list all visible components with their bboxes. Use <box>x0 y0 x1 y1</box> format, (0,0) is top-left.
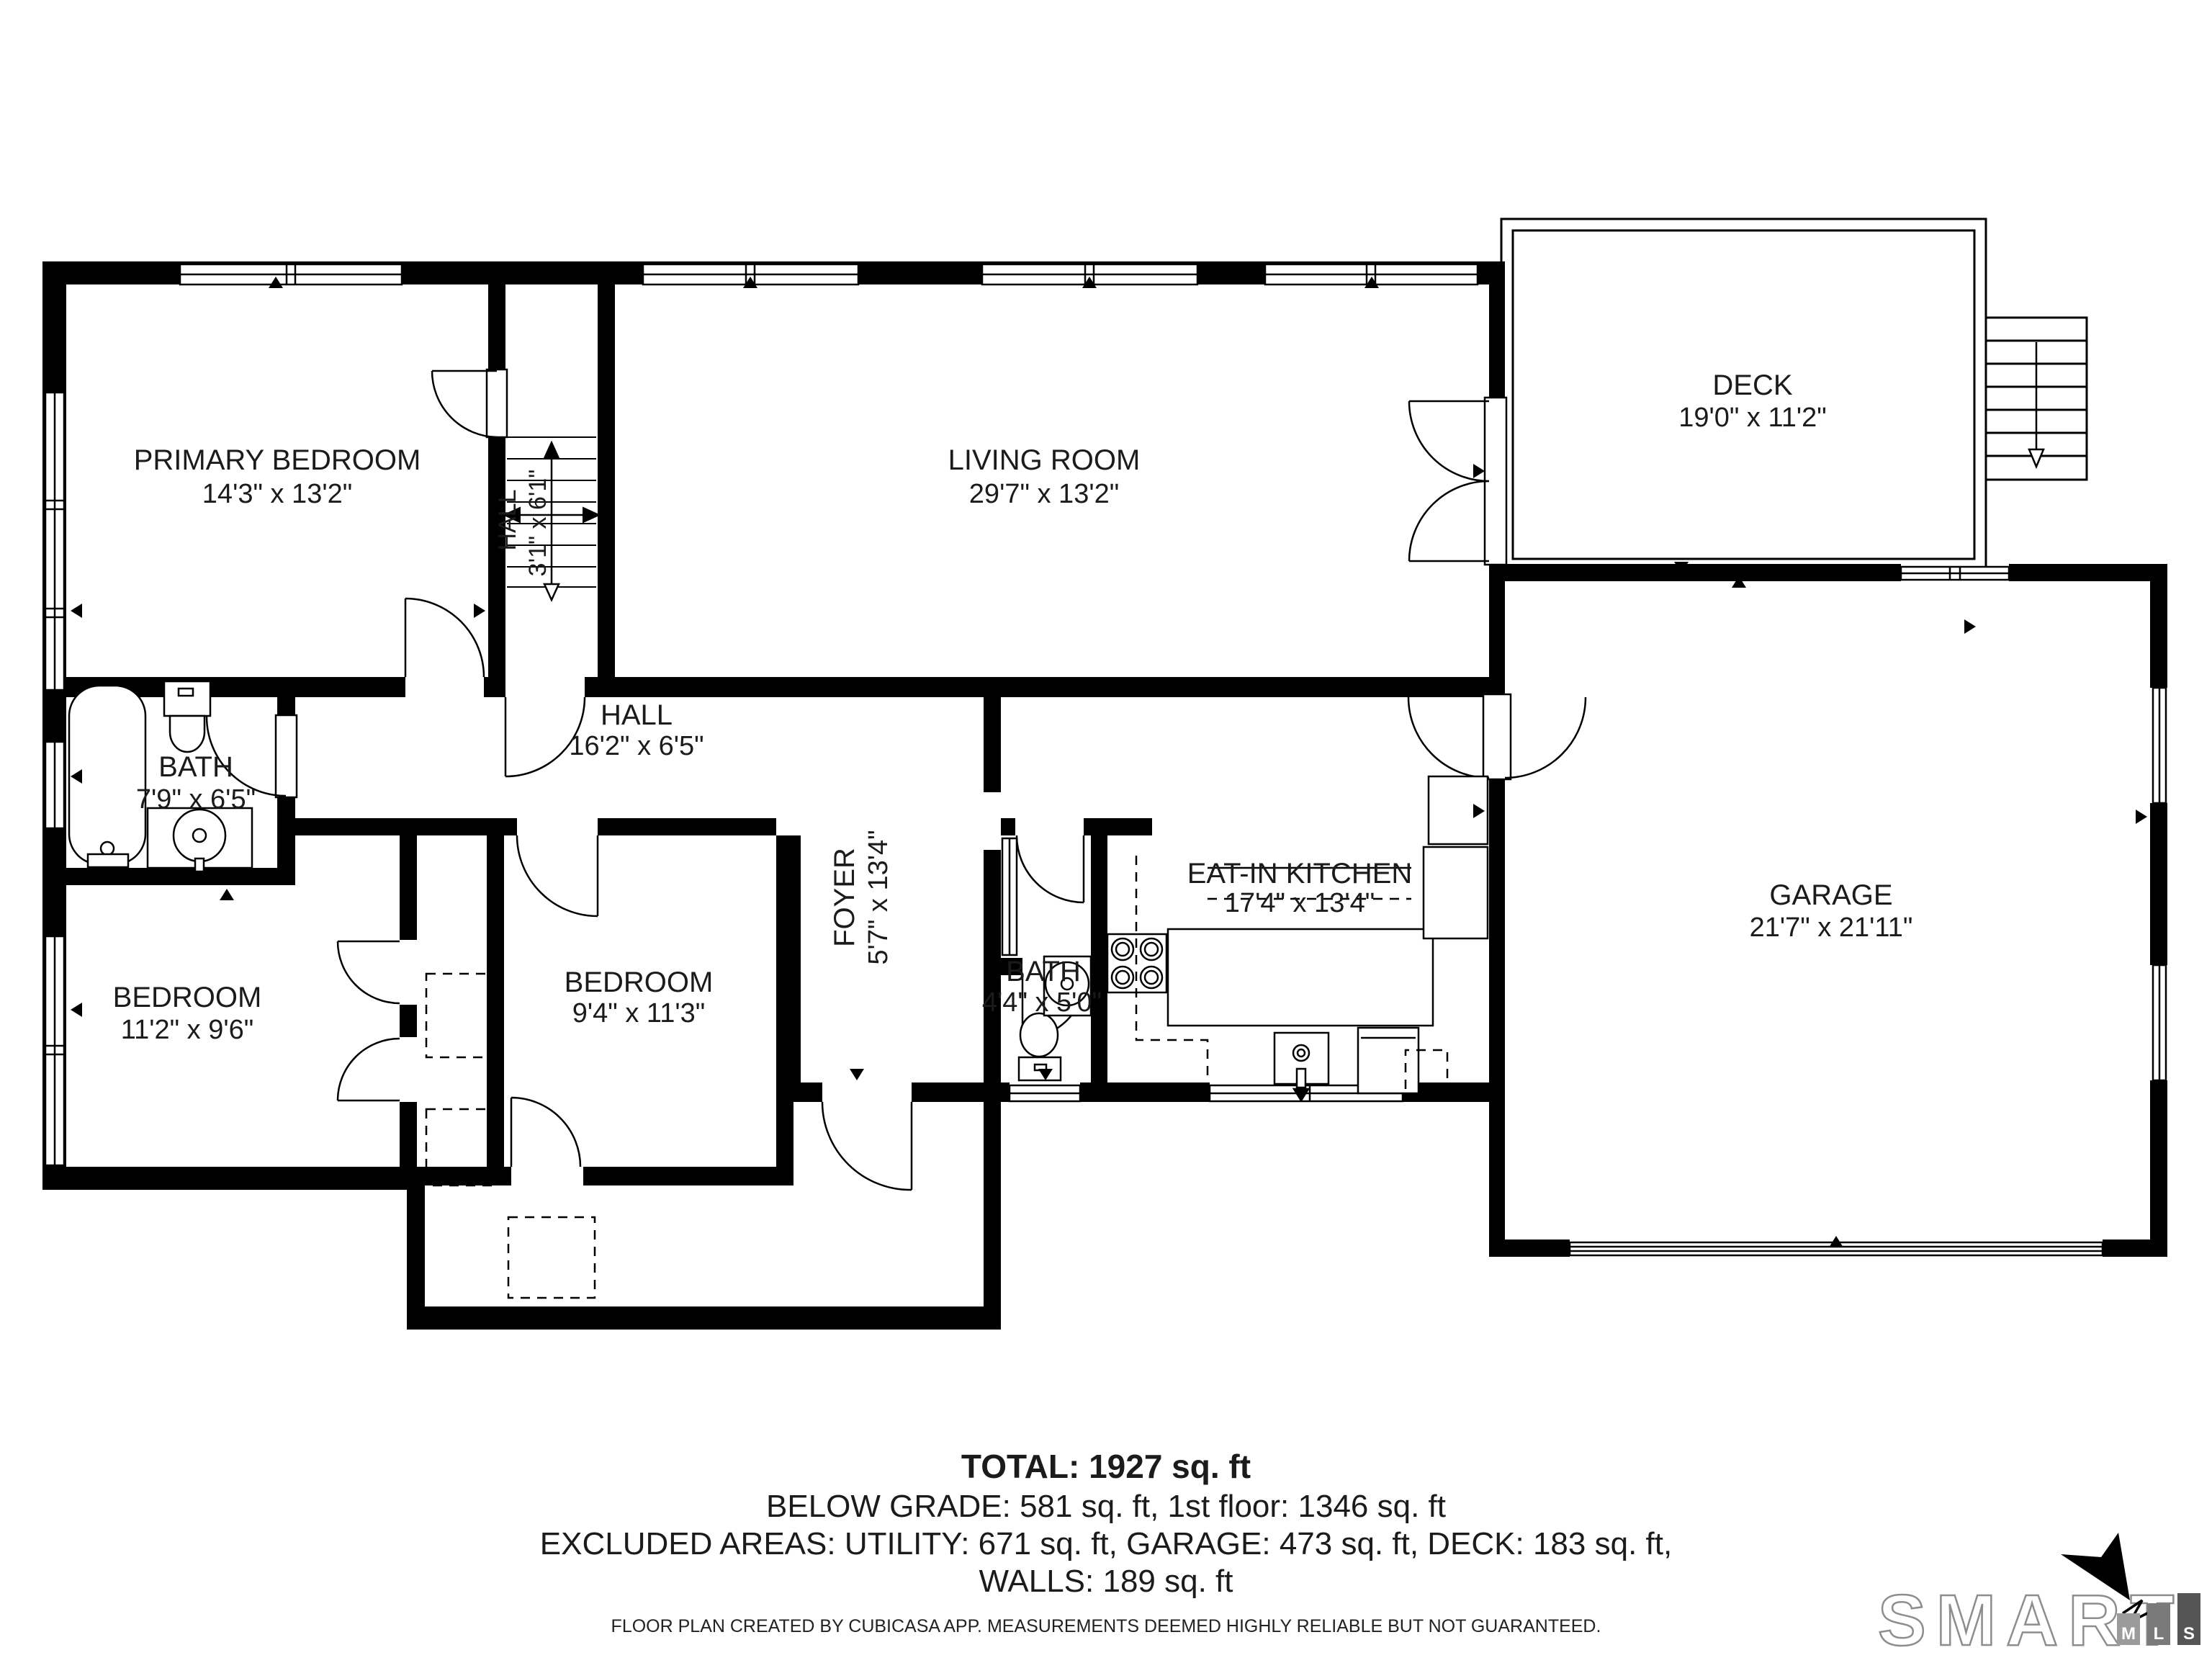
summary-excluded: EXCLUDED AREAS: UTILITY: 671 sq. ft, GAR… <box>540 1526 1672 1561</box>
room-label-stair-hall: HALL <box>494 489 521 550</box>
room-dims-garage: 21'7" x 21'11" <box>1750 913 1913 943</box>
kitchen-garage-door-slab <box>1483 694 1511 779</box>
closet-shelf-1 <box>426 974 495 1057</box>
room-label-living-room: LIVING ROOM <box>948 444 1141 476</box>
window-garage-right-1 <box>2153 688 2166 803</box>
toilet <box>164 681 210 752</box>
window-garage-right-2 <box>2153 965 2166 1080</box>
smartmls-logo: SMART M L S <box>1878 1533 2200 1659</box>
window-bath-left <box>45 742 64 828</box>
closet-shelf-3 <box>508 1217 595 1298</box>
hall-closet <box>1002 838 1017 955</box>
room-label-deck: DECK <box>1712 369 1792 401</box>
room-label-bath-small: BATH <box>1006 956 1081 987</box>
window-garage-top <box>1901 567 2009 580</box>
logo-bar-s: S <box>2177 1593 2200 1645</box>
deck-stairs <box>1986 318 2087 480</box>
room-label-foyer: FOYER <box>829 848 860 947</box>
logo-bar-l: L <box>2147 1603 2170 1645</box>
deck-structure <box>1501 219 2087 569</box>
dishwasher <box>1358 1028 1419 1093</box>
room-dims-bath: 7'9" x 6'5" <box>136 784 256 815</box>
room-dims-stair-hall: 3'1" x 6'1" <box>524 470 552 577</box>
svg-text:S: S <box>2183 1624 2195 1644</box>
room-label-hall: HALL <box>601 699 673 731</box>
room-dims-foyer: 5'7" x 13'4" <box>863 830 894 964</box>
window-primary-left <box>45 393 64 690</box>
primary-entry-door <box>405 599 484 677</box>
primary-closet-door-slab <box>487 369 507 437</box>
room-label-garage: GARAGE <box>1769 879 1892 911</box>
summary-walls: WALLS: 189 sq. ft <box>979 1564 1233 1599</box>
svg-text:M: M <box>2121 1624 2136 1644</box>
bedroom-left-door-1 <box>338 941 400 1003</box>
windows <box>45 264 2166 1255</box>
bathroom-sink <box>148 808 252 871</box>
room-dims-bath-small: 4'4" x 5'0" <box>982 987 1102 1018</box>
window-smallbath-bottom <box>1010 1085 1080 1101</box>
room-label-kitchen: EAT-IN KITCHEN <box>1187 858 1413 889</box>
room-label-bath: BATH <box>158 751 233 783</box>
floor-plan-canvas: PRIMARY BEDROOM 14'3" x 13'2" LIVING ROO… <box>0 0 2212 1659</box>
bedroom-center-lower-door <box>511 1098 580 1167</box>
window-bedroom-left <box>45 936 64 1165</box>
svg-text:L: L <box>2154 1624 2164 1644</box>
room-dims-hall: 16'2" x 6'5" <box>569 731 703 761</box>
small-hall-door <box>1017 835 1084 902</box>
front-door <box>822 1102 912 1190</box>
deck-french-doors <box>1409 401 1489 561</box>
room-label-primary-bedroom: PRIMARY BEDROOM <box>134 444 421 476</box>
room-dims-bedroom-left: 11'2" x 9'6" <box>121 1015 253 1045</box>
room-label-bedroom-left: BEDROOM <box>113 982 262 1013</box>
area-summary: TOTAL: 1927 sq. ft BELOW GRADE: 581 sq. … <box>540 1448 1672 1636</box>
summary-below-grade: BELOW GRADE: 581 sq. ft, 1st floor: 1346… <box>766 1489 1446 1524</box>
room-dims-deck: 19'0" x 11'2" <box>1678 403 1827 433</box>
footer-disclaimer: FLOOR PLAN CREATED BY CUBICASA APP. MEAS… <box>611 1616 1601 1636</box>
logo-bar-m: M <box>2117 1613 2140 1645</box>
refrigerator <box>1424 847 1488 938</box>
room-dims-kitchen: 17'4" x 13'4" <box>1225 888 1375 918</box>
kitchen-counter <box>1168 929 1433 1026</box>
summary-total: TOTAL: 1927 sq. ft <box>961 1448 1251 1485</box>
room-label-bedroom-center: BEDROOM <box>565 967 714 998</box>
room-dims-living-room: 29'7" x 13'2" <box>969 479 1119 509</box>
bedroom-center-door <box>517 835 598 916</box>
room-dims-primary-bedroom: 14'3" x 13'2" <box>202 479 352 509</box>
room-dims-bedroom-center: 9'4" x 11'3" <box>572 998 705 1028</box>
bath-door-slab <box>276 715 297 797</box>
walls <box>42 261 2167 1330</box>
bedroom-left-door-2 <box>338 1039 400 1101</box>
window-primary-top <box>180 264 402 284</box>
